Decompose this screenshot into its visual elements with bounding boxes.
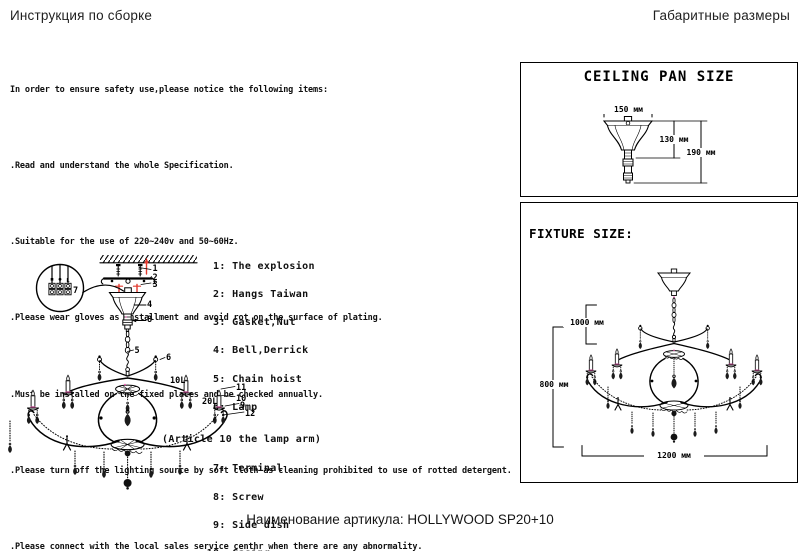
callout-4: 4 [147,301,152,309]
instruction-item: .Read and understand the whole Specifica… [10,154,512,179]
ceiling-hatch [100,255,197,263]
fixture-chain [672,298,676,342]
manual-page: Инструкция по сборке Габаритные размеры … [0,0,800,551]
article-name: Наименование артикула: HOLLYWOOD SP20+10 [0,512,800,527]
dim-pan-height: 130 мм [650,135,698,144]
callout-3: 3 [153,281,158,289]
mounting-screws [116,264,143,276]
hook-icon [184,435,191,450]
dim-fixture-width: 1200 мм [644,451,704,460]
hook-icon [64,435,71,450]
callout-5: 5 [135,347,140,355]
dim-pan-overall: 190 мм [677,148,725,157]
callout-6: 6 [166,354,171,362]
ceiling-pan [110,288,146,332]
callout-12: 12 [245,410,255,418]
callout-7: 7 [73,287,78,295]
callout-11: 11 [236,384,246,392]
dim-suspension: 1000 мм [563,318,611,327]
chain [125,331,130,367]
dimension-lines [553,305,767,456]
label-20l: 20L [202,398,217,406]
callout-1: 1 [153,265,158,273]
screw-callout [132,319,146,323]
mounting-bracket [101,279,154,284]
fixture-canopy [658,269,690,298]
dimensions-title: Габаритные размеры [653,8,790,23]
callout-8: 8 [147,316,152,324]
dim-body-height: 800 мм [532,380,576,389]
fixture-drawing [520,202,797,483]
chandelier-body [8,355,227,489]
dim-pan-width: 150 мм [601,105,656,114]
label-10l: 10L [170,377,185,385]
page-title: Инструкция по сборке [10,8,152,23]
instructions-intro: In order to ensure safety use,please not… [10,78,512,103]
ceiling-pan-drawing [520,62,797,196]
fixture-body [586,325,763,443]
